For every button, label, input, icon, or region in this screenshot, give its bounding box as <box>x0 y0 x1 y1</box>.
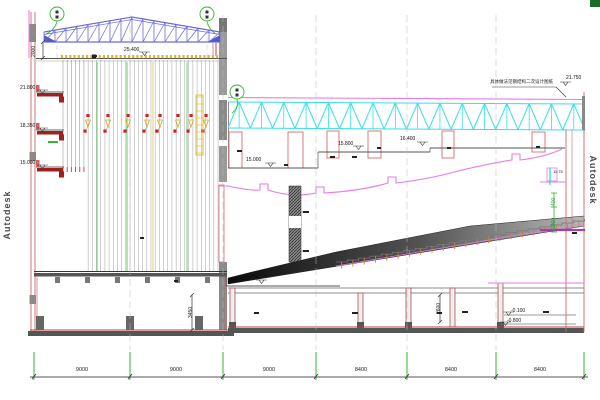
elevation-gallery-3: 15.000 <box>20 160 35 166</box>
counterweight-pulleys <box>83 114 208 133</box>
grid-center-lines <box>57 15 496 350</box>
corner-logo-fragment <box>590 0 600 7</box>
elevation-ceiling-3: 16.400 <box>400 136 415 142</box>
elevation-grid-top: 25.400 <box>124 47 139 53</box>
elevation-markers <box>37 52 571 326</box>
elevation-ceiling-1: 15.000 <box>246 157 261 163</box>
dim-right-small: 400 <box>552 198 557 206</box>
watermark-left: Autodesk <box>2 175 12 255</box>
bay-dim-2: 9000 <box>161 367 191 373</box>
bay-dim-5: 8400 <box>436 367 466 373</box>
elevation-stalls: 5.750 <box>246 274 259 280</box>
roof-note-leader <box>492 87 566 97</box>
elevation-basement-1: -0.100 <box>511 308 525 314</box>
bay-dim-1: 9000 <box>67 367 97 373</box>
dim-fly-grid: 2000 <box>32 46 37 57</box>
elevation-aud-roof: 21.750 <box>566 75 581 81</box>
elevation-basement-2: -0.800 <box>507 318 521 324</box>
fly-tower-left-wall <box>29 10 36 336</box>
yellow-ladder-truss <box>196 95 203 155</box>
auditorium-roof-truss <box>228 98 585 169</box>
elevation-gallery-1: 21.800 <box>20 85 35 91</box>
ceiling-profile <box>219 149 562 195</box>
dim-trap: 3450 <box>189 307 194 318</box>
stalls-and-basement <box>226 273 584 333</box>
fly-lines <box>63 60 218 271</box>
dim-right-large: 2000 <box>552 218 557 229</box>
bottom-dimension-line <box>30 352 588 380</box>
bay-dim-3: 9000 <box>254 367 284 373</box>
bay-dim-4: 8400 <box>346 367 376 373</box>
elevation-ceiling-2: 15.800 <box>338 141 353 147</box>
bay-dim-6: 8400 <box>525 367 555 373</box>
dim-base-room: 2600 <box>437 303 442 314</box>
roof-note: 具体做法见钢结构二次设计图纸 <box>490 79 553 85</box>
elevation-right-side: 11.75 <box>553 169 563 175</box>
elevation-gallery-2: 18.350 <box>20 123 35 129</box>
watermark-right: Autodesk <box>588 140 598 220</box>
side-galleries <box>36 85 64 178</box>
section-linework <box>0 0 600 400</box>
batten-center-lines <box>97 62 187 271</box>
catwalk-boxes <box>228 131 565 168</box>
stage-floor-and-trap-room <box>28 272 234 337</box>
cad-section-drawing-canvas[interactable]: 25.400 2000 21.800 18.350 15.000 具体做法见钢结… <box>0 0 600 400</box>
grid-iron-beam-row <box>61 55 218 59</box>
